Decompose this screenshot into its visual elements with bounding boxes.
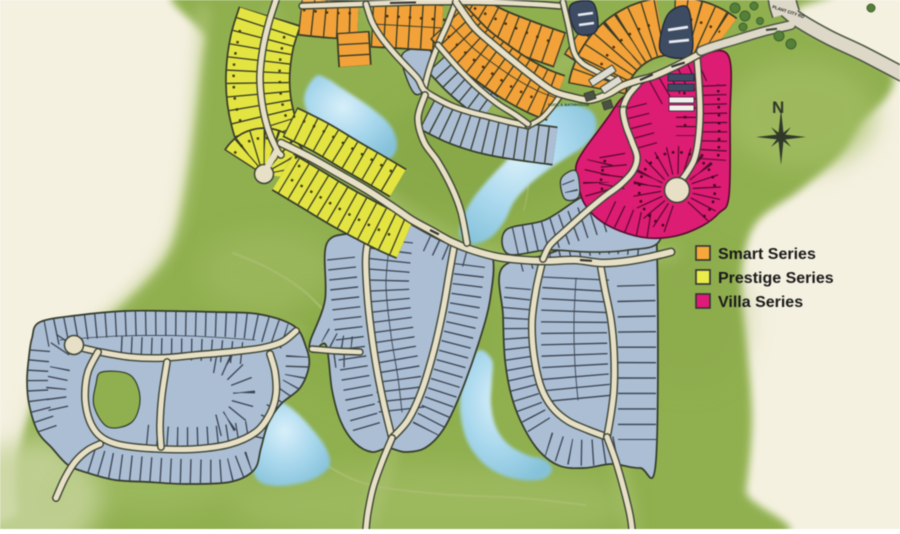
svg-text:Villa Series: Villa Series: [718, 294, 803, 311]
svg-text:N: N: [772, 98, 784, 117]
svg-text:PARK: PARK: [617, 104, 628, 109]
svg-text:Smart Series: Smart Series: [718, 246, 816, 263]
svg-text:Prestige Series: Prestige Series: [718, 270, 834, 287]
svg-text:POOL & BATHHOUSE: POOL & BATHHOUSE: [548, 102, 590, 107]
